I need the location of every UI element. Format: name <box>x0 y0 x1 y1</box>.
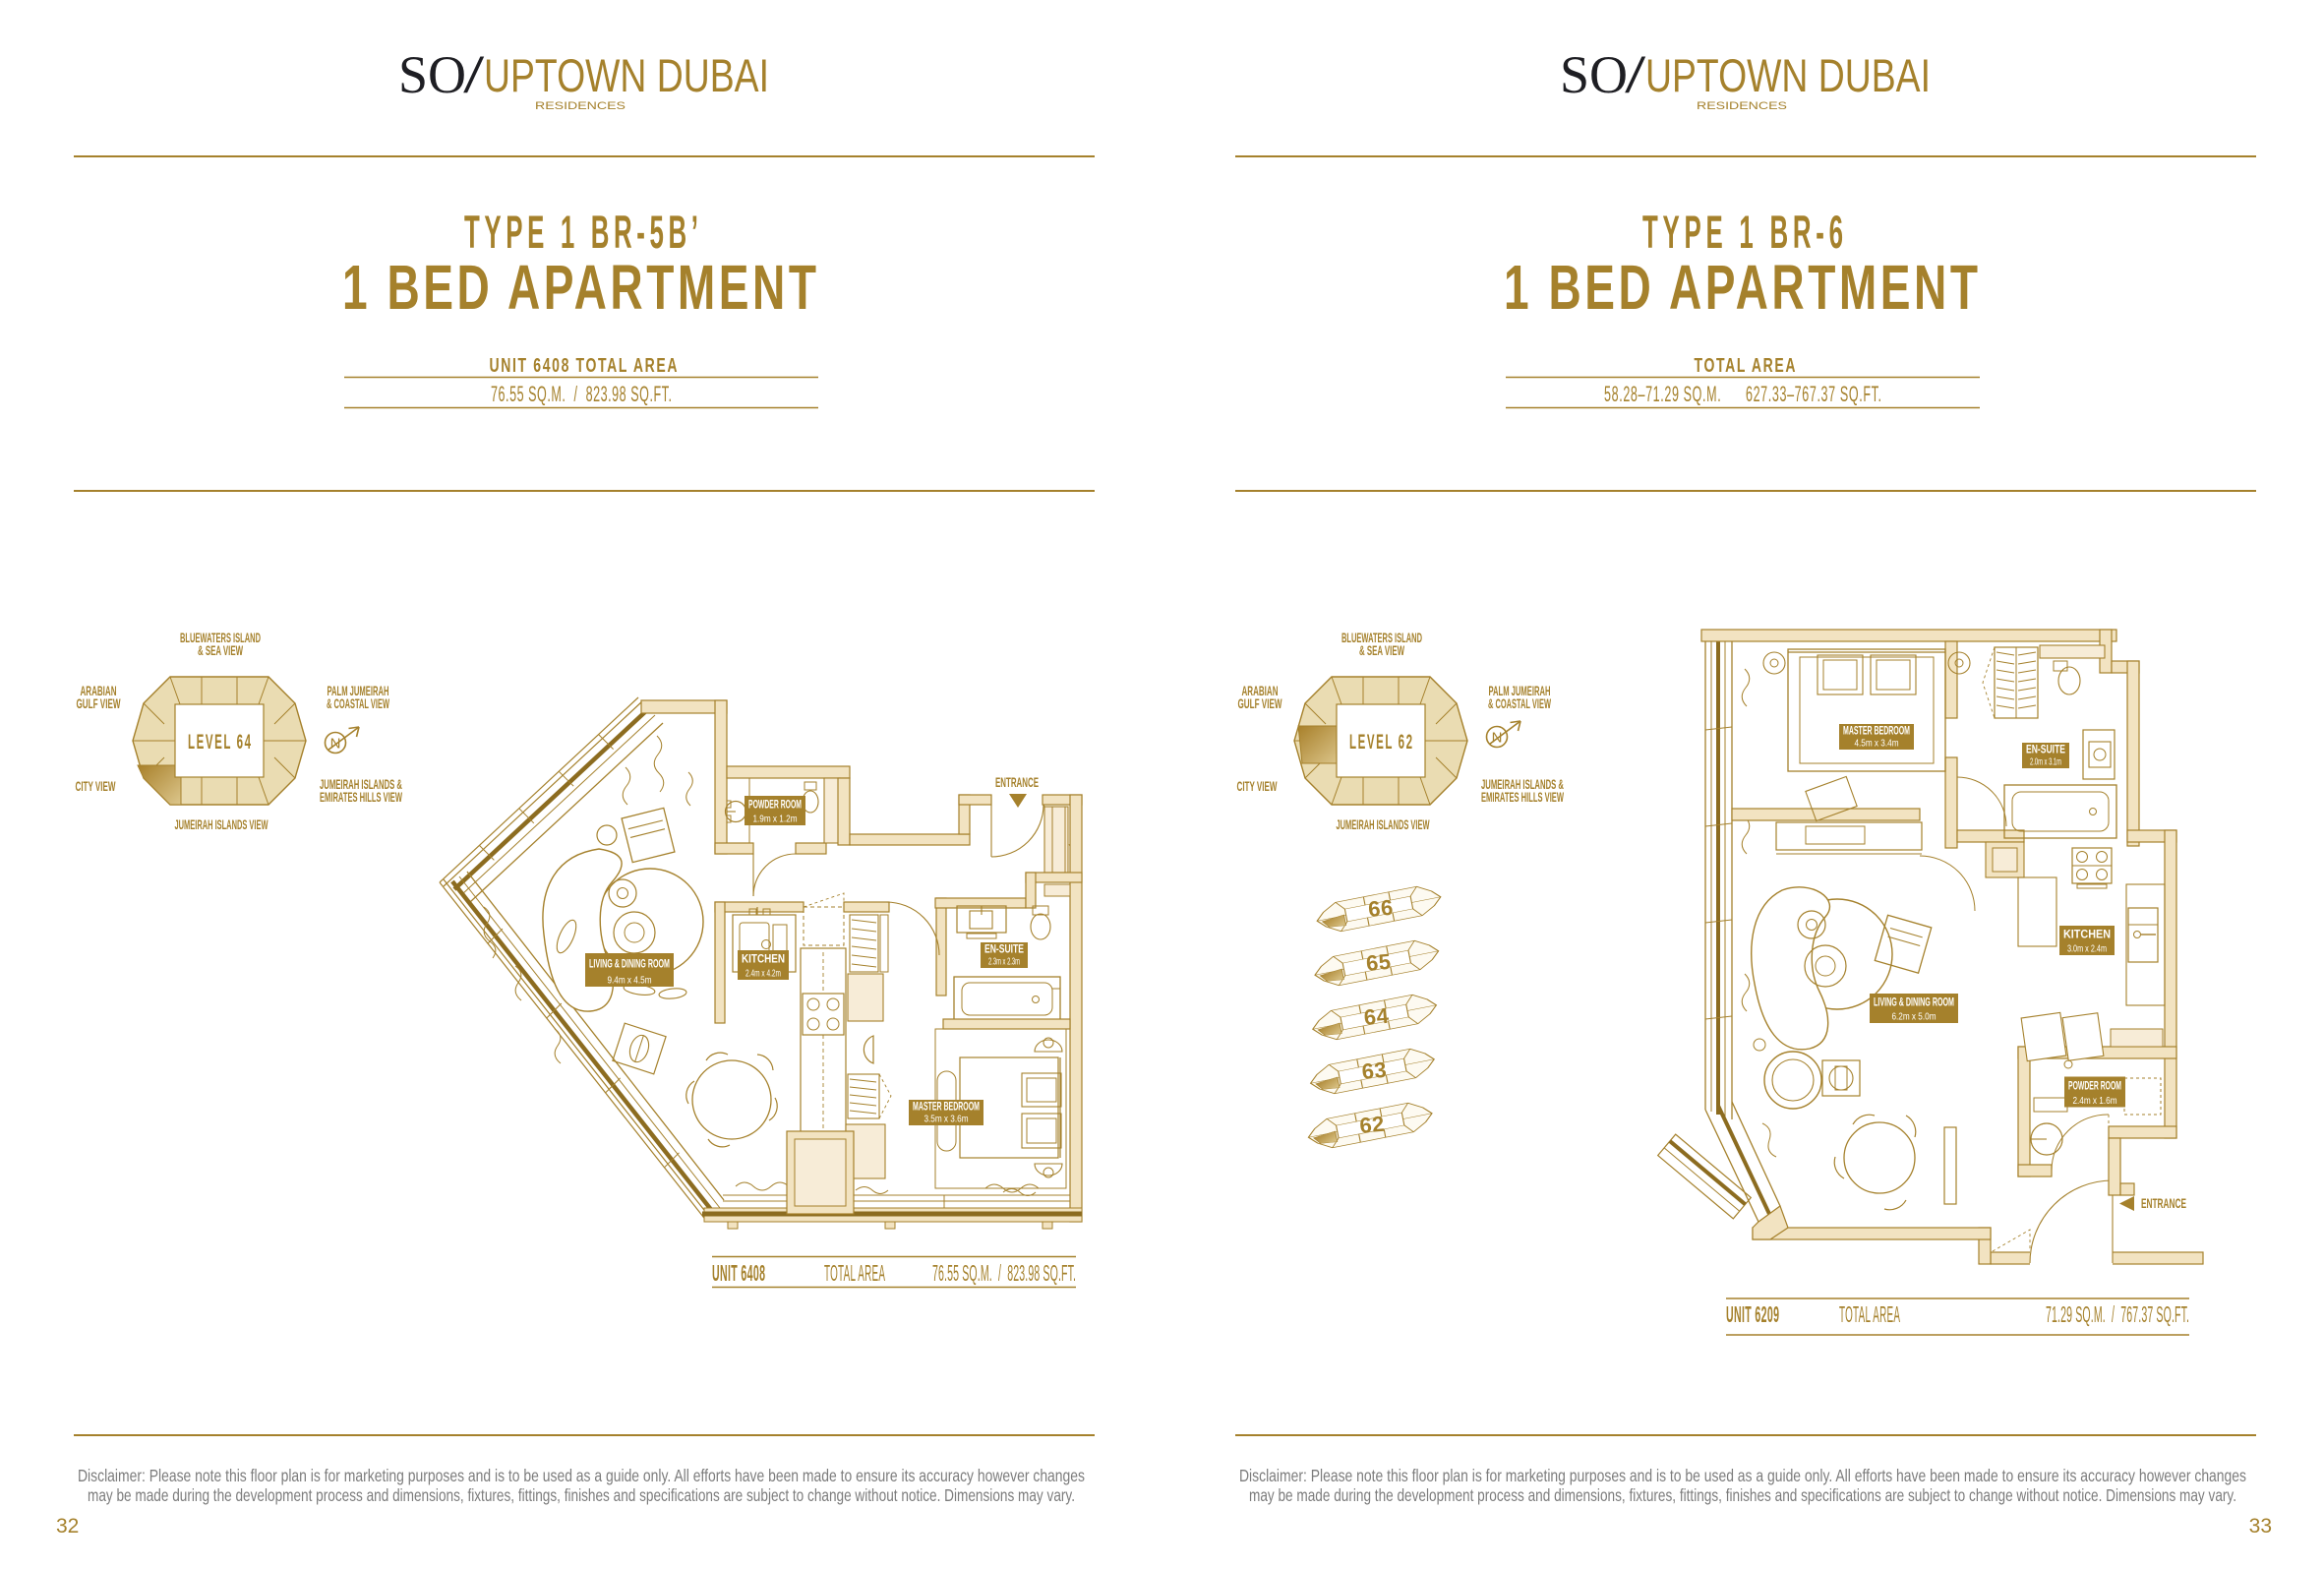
svg-text:3.5m x 3.6m: 3.5m x 3.6m <box>924 1114 968 1125</box>
svg-text:EN-SUITE: EN-SUITE <box>984 944 1024 956</box>
svg-text:GULF VIEW: GULF VIEW <box>1238 695 1282 711</box>
svg-text:KITCHEN: KITCHEN <box>742 954 785 966</box>
svg-text:6.2m x 5.0m: 6.2m x 5.0m <box>1891 1011 1936 1023</box>
svg-text:LIVING & DINING ROOM: LIVING & DINING ROOM <box>589 959 670 971</box>
svg-text:4.5m x 3.4m: 4.5m x 3.4m <box>1854 738 1898 750</box>
svg-text:32: 32 <box>56 1515 79 1538</box>
svg-text:ENTRANCE: ENTRANCE <box>995 774 1039 790</box>
svg-text:1 BED APARTMENT: 1 BED APARTMENT <box>342 253 816 323</box>
svg-text:CITY VIEW: CITY VIEW <box>1237 778 1278 794</box>
svg-text:TOTAL AREA: TOTAL AREA <box>1839 1301 1900 1327</box>
svg-text:LIVING & DINING ROOM: LIVING & DINING ROOM <box>1874 997 1954 1009</box>
svg-text:SO/: SO/ <box>398 45 485 104</box>
svg-text:SO/: SO/ <box>1560 45 1646 104</box>
svg-text:UNIT 6408 TOTAL AREA: UNIT 6408 TOTAL AREA <box>489 353 677 376</box>
svg-text:KITCHEN: KITCHEN <box>2063 930 2111 941</box>
svg-text:63: 63 <box>1361 1057 1389 1084</box>
svg-text:ENTRANCE: ENTRANCE <box>2141 1195 2186 1211</box>
svg-text:1 BED APARTMENT: 1 BED APARTMENT <box>1504 253 1978 323</box>
svg-text:MASTER BEDROOM: MASTER BEDROOM <box>1843 726 1910 738</box>
svg-text:RESIDENCES: RESIDENCES <box>1697 100 1787 112</box>
svg-text:EMIRATES HILLS VIEW: EMIRATES HILLS VIEW <box>1481 789 1564 805</box>
svg-text:may be made during the develop: may be made during the development proce… <box>88 1485 1075 1505</box>
svg-text:POWDER ROOM: POWDER ROOM <box>748 800 802 812</box>
svg-text:POWDER ROOM: POWDER ROOM <box>2068 1081 2121 1093</box>
svg-text:TOTAL AREA: TOTAL AREA <box>824 1260 885 1286</box>
svg-text:JUMEIRAH ISLANDS VIEW: JUMEIRAH ISLANDS VIEW <box>175 816 268 832</box>
svg-text:Disclaimer: Please note this f: Disclaimer: Please note this floor plan … <box>78 1466 1085 1485</box>
svg-text:RESIDENCES: RESIDENCES <box>535 100 626 112</box>
svg-text:3.0m x 2.4m: 3.0m x 2.4m <box>2067 943 2107 955</box>
svg-text:TOTAL AREA: TOTAL AREA <box>1695 353 1796 376</box>
svg-text:UNIT 6209: UNIT 6209 <box>1726 1301 1779 1327</box>
svg-text:2.4m x 4.2m: 2.4m x 4.2m <box>745 968 781 980</box>
svg-text:58.28–71.29 SQ.M. 627.33–: 58.28–71.29 SQ.M. 627.33–767.37 SQ.FT. <box>1604 382 1881 406</box>
svg-text:33: 33 <box>2249 1515 2272 1538</box>
svg-text:UPTOWN DUBAI: UPTOWN DUBAI <box>484 49 769 101</box>
svg-text:64: 64 <box>1363 1003 1391 1030</box>
svg-text:GULF VIEW: GULF VIEW <box>77 695 121 711</box>
svg-text:2.3m x 2.3m: 2.3m x 2.3m <box>988 956 1020 968</box>
svg-text:& COASTAL VIEW: & COASTAL VIEW <box>327 695 389 711</box>
svg-text:LEVEL 62: LEVEL 62 <box>1349 730 1412 754</box>
svg-text:UNIT 6408: UNIT 6408 <box>712 1260 765 1286</box>
svg-text:65: 65 <box>1365 949 1393 976</box>
svg-text:LEVEL 64: LEVEL 64 <box>188 730 251 754</box>
svg-text:EN-SUITE: EN-SUITE <box>2026 745 2065 756</box>
svg-text:& SEA VIEW: & SEA VIEW <box>198 642 243 658</box>
svg-text:Disclaimer: Please note this f: Disclaimer: Please note this floor plan … <box>1239 1466 2246 1485</box>
svg-text:JUMEIRAH ISLANDS VIEW: JUMEIRAH ISLANDS VIEW <box>1337 816 1430 832</box>
svg-text:76.55 SQ.M. / 823.98 SQ.FT.: 76.55 SQ.M. / 823.98 SQ.FT. <box>491 382 672 406</box>
svg-text:66: 66 <box>1367 895 1395 922</box>
svg-text:9.4m x 4.5m: 9.4m x 4.5m <box>607 975 651 987</box>
svg-text:may be made during the develop: may be made during the development proce… <box>1249 1485 2236 1505</box>
svg-text:CITY VIEW: CITY VIEW <box>76 778 116 794</box>
svg-text:76.55 SQ.M. / 823.98 SQ.FT.: 76.55 SQ.M. / 823.98 SQ.FT. <box>932 1260 1076 1286</box>
svg-text:2.4m x 1.6m: 2.4m x 1.6m <box>2072 1095 2116 1107</box>
svg-text:& SEA VIEW: & SEA VIEW <box>1359 642 1404 658</box>
svg-text:1.9m x 1.2m: 1.9m x 1.2m <box>752 814 797 825</box>
svg-text:MASTER BEDROOM: MASTER BEDROOM <box>913 1102 980 1114</box>
svg-text:62: 62 <box>1358 1112 1386 1138</box>
svg-text:UPTOWN DUBAI: UPTOWN DUBAI <box>1645 49 1931 101</box>
svg-text:TYPE 1 BR-5B’: TYPE 1 BR-5B’ <box>464 208 698 259</box>
svg-text:2.0m x 3.1m: 2.0m x 3.1m <box>2030 756 2061 768</box>
svg-text:71.29 SQ.M. / 767.37 SQ.FT.: 71.29 SQ.M. / 767.37 SQ.FT. <box>2046 1301 2189 1327</box>
svg-text:& COASTAL VIEW: & COASTAL VIEW <box>1488 695 1551 711</box>
svg-text:EMIRATES HILLS VIEW: EMIRATES HILLS VIEW <box>320 789 402 805</box>
